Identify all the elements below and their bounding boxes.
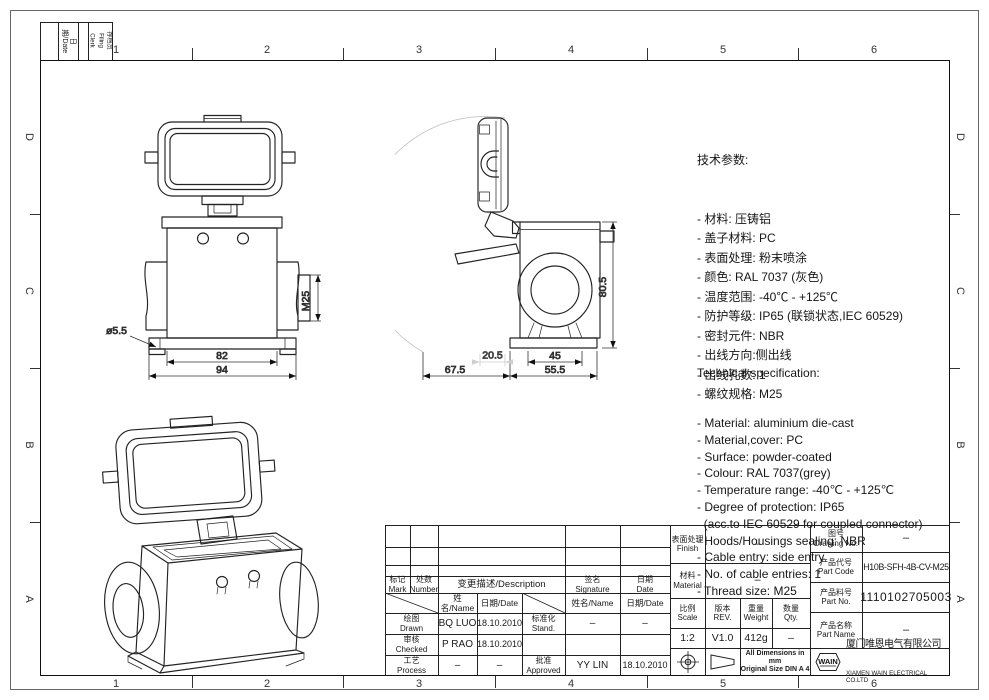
tb-qty-label: 数量 Qty. [772,598,810,628]
iso-view-outline [99,412,322,673]
wain-logo: WAIN [813,650,843,674]
tb-approved-date: 18.10.2010 [620,655,670,676]
tb-scale-value: 1:2 [670,628,705,648]
tb-process-label: 工艺 Process [385,655,438,676]
zone-letter-right: A [953,592,967,606]
side-view: 80.5 45 55.5 67.5 20.5 [395,105,645,390]
tb-weight-label: 重量 Weight [740,598,772,628]
tb-qty-value: – [772,628,810,648]
tb-approved-sig: YY LIN [565,655,620,676]
tb-name-subheader: 姓名/Name [438,593,477,613]
company-name-cn: 厦门唯恩电气有限公司 [846,639,950,651]
dim-height: 80.5 [597,277,609,298]
dim-555: 55.5 [545,364,566,376]
tb-process-date: – [477,655,522,676]
zone-letter-left: A [22,592,36,606]
front-view-dimensions: 82 94 ø5.5 M25 [106,275,321,380]
dim-675: 67.5 [445,364,466,376]
tb-approved-label: 批准 Approved [522,655,565,676]
zone-letter-left: C [22,284,36,298]
svg-text:WAIN: WAIN [818,657,838,666]
projection-symbol-icon [670,648,705,676]
tb-finish-value: – [705,525,810,563]
front-view: 82 94 ø5.5 M25 [100,105,340,385]
dim-82: 82 [216,350,228,362]
zone-number-top: 6 [867,43,881,57]
tb-rev-value: V1.0 [705,628,740,648]
tb-material-label: 材料 Material [670,563,705,598]
tb-mark-label: 标记 Mark [385,576,410,593]
zone-number-bottom: 3 [412,677,426,691]
tb-part-no-value: 1110102705003 [862,582,950,612]
tb-checked-name: P RAO [438,634,477,655]
zone-letter-left: D [22,130,36,144]
tb-process-name: – [438,655,477,676]
zone-number-top: 5 [716,43,730,57]
tb-date-label: 日期 Date [620,576,670,593]
tb-stand-sig: – [565,613,620,634]
zone-number-top: 3 [412,43,426,57]
isometric-view [80,400,340,680]
front-view-outline [145,116,310,355]
zone-letter-right: C [953,284,967,298]
tb-part-no-label: 产品料号 Part No. [810,582,862,612]
tb-weight-value: 412g [740,628,772,648]
tb-drawn-date: 18.10.2010 [477,613,522,634]
tb-drawing-no-label: 图号 Drawing No. [810,525,862,552]
tb-dimensions-note: All Dimensions in mm Original Size DIN A… [740,648,810,676]
tb-stand-date: – [620,613,670,634]
company-block: WAIN 厦门唯恩电气有限公司 XIAMEN WAIN ELECTRICAL C… [810,648,950,676]
tb-date-subheader: 日期/Date [477,593,522,613]
dim-94: 94 [216,364,228,376]
dim-hole: ø5.5 [106,325,127,337]
zone-number-top: 2 [260,43,274,57]
tb-drawn-label: 绘图 Drawn [385,613,438,634]
dim-thread: M25 [300,291,312,312]
zone-number-bottom: 5 [716,677,730,691]
tb-stand-label: 标准化 Stand. [522,613,565,634]
tb-drawing-no-value: – [862,525,950,552]
zone-letter-right: B [953,438,967,452]
tb-material-value: – [705,563,810,598]
tb-rev-label: 版本 REV. [705,598,740,628]
tb-checked-label: 审核 Checked [385,634,438,655]
tb-number-label: 处数 Number [410,576,438,593]
tb-scale-label: 比例 Scale [670,598,705,628]
tb-checked-date: 18.10.2010 [477,634,522,655]
spec-cn-title: 技术参数: [697,151,947,171]
company-name-en: XIAMEN WAIN ELECTRICAL CO.LTD [846,670,950,685]
dim-45: 45 [549,350,561,362]
corner-filing-clerk-label: 存档员 Filing Clerk [88,22,112,60]
tb-description-label: 变更描述/Description [438,576,565,593]
zone-letter-right: D [953,130,967,144]
zone-number-bottom: 4 [564,677,578,691]
tb-date-subheader2: 日期/Date [620,593,670,613]
corner-date-label: 日期/Date [58,22,78,60]
tb-signature-label: 签名 Signature [565,576,620,593]
zone-number-top: 4 [564,43,578,57]
tb-part-code-label: 产品代号 Part Code [810,552,862,582]
tb-name-subheader2: 姓名/Name [565,593,620,613]
cone-symbol-icon [705,648,740,676]
zone-letter-left: B [22,438,36,452]
dim-205: 20.5 [482,350,503,362]
drawing-sheet: 1 2 3 4 5 6 1 2 3 4 5 6 D C B A D C B A … [0,0,989,700]
spec-en-title: Technical specification: [697,365,949,382]
side-view-outline [455,118,614,348]
tb-finish-label: 表面处理 Finish [670,525,705,563]
tb-part-code-value: H10B-SFH-4B-CV-M25 [862,552,950,582]
tb-drawn-name: BQ LUO [438,613,477,634]
